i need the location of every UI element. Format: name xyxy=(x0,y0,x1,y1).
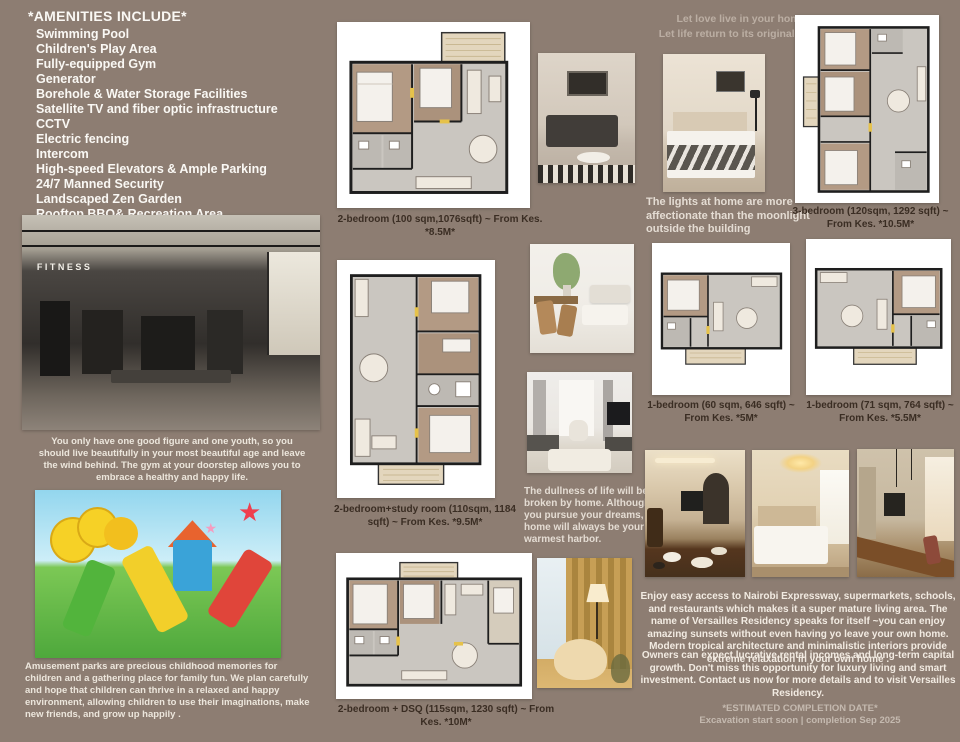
amenity-item: Generator xyxy=(28,72,334,87)
star-icon: ★ xyxy=(238,497,261,528)
floorplan-1bedroom-60-caption: 1-bedroom (60 sqm, 646 sqft) ~ From Kes.… xyxy=(645,400,797,425)
floorplan-1bedroom-71-drawing xyxy=(812,245,945,389)
floorplan-2bed-dsq-caption: 2-bedroom + DSQ (115sqm, 1230 sqft) ~ Fr… xyxy=(336,704,556,729)
floorplan-1bedroom-60-drawing xyxy=(658,249,785,389)
floorplan-1bedroom-71-caption: 1-bedroom (71 sqm, 764 sqft) ~ From Kes.… xyxy=(806,400,954,425)
bedroom-photo xyxy=(663,54,765,192)
dining-photo xyxy=(645,450,745,577)
amenities-list: *AMENITIES INCLUDE* Swimming Pool Childr… xyxy=(28,8,334,222)
floorplan-3bedroom-drawing xyxy=(801,23,933,196)
floorplan-2bed-study-caption: 2-bedroom+study room (110sqm, 1184 sqft)… xyxy=(330,504,520,529)
amenity-item: Swimming Pool xyxy=(28,27,334,42)
amenity-item: 24/7 Manned Security xyxy=(28,177,334,192)
amenity-item: Satellite TV and fiber optic infrastruct… xyxy=(28,102,334,117)
playground-photo: ★ ★ xyxy=(35,490,281,658)
floorplan-2bedroom-drawing xyxy=(345,29,523,200)
amenity-item: Fully-equipped Gym xyxy=(28,57,334,72)
amenity-item: Landscaped Zen Garden xyxy=(28,192,334,207)
dullness-quote: The dullness of life will be broken by h… xyxy=(524,486,654,546)
floorplan-2bed-study-drawing xyxy=(343,270,488,489)
floorplan-3bedroom xyxy=(795,15,939,203)
completion-date: *ESTIMATED COMPLETION DATE* Excavation s… xyxy=(688,703,912,727)
wood-living-photo xyxy=(857,449,954,577)
gym-photo: FITNESS xyxy=(22,215,320,430)
lamp-corner-photo xyxy=(537,558,632,688)
amenity-item: CCTV xyxy=(28,117,334,132)
fitness-sign: FITNESS xyxy=(37,262,93,272)
floorplan-2bedroom xyxy=(337,22,530,208)
warm-bedroom-photo xyxy=(752,450,849,577)
floorplan-1bedroom-71 xyxy=(806,239,951,395)
floorplan-2bed-dsq-drawing xyxy=(344,559,524,693)
star-icon: ★ xyxy=(204,520,217,537)
amenity-item: Electric fencing xyxy=(28,132,334,147)
playground-caption: Amusement parks are precious childhood m… xyxy=(25,661,313,721)
floorplan-2bed-dsq xyxy=(336,553,532,699)
marketing-paragraph-2: Owners can expect lucrative rental incom… xyxy=(638,650,958,700)
floorplan-2bed-study xyxy=(337,260,495,498)
tv-room-photo xyxy=(527,372,632,473)
amenities-title: *AMENITIES INCLUDE* xyxy=(28,8,334,24)
amenity-item: Borehole & Water Storage Facilities xyxy=(28,87,334,102)
living-room-photo xyxy=(538,53,635,183)
gym-caption: You only have one good figure and one yo… xyxy=(38,436,306,484)
amenity-item: High-speed Elevators & Ample Parking xyxy=(28,162,334,177)
amenity-item: Children's Play Area xyxy=(28,42,334,57)
floorplan-3bedroom-caption: 3-bedroom (120sqm, 1292 sqft) ~ From Kes… xyxy=(788,206,953,231)
completion-date-detail: Excavation start soon | completion Sep 2… xyxy=(688,715,912,727)
floorplan-1bedroom-60 xyxy=(652,243,790,395)
floorplan-2bedroom-caption: 2-bedroom (100 sqm,1076sqft) ~ From Kes.… xyxy=(328,214,552,239)
amenity-item: Intercom xyxy=(28,147,334,162)
flyer-canvas: *AMENITIES INCLUDE* Swimming Pool Childr… xyxy=(0,0,960,742)
completion-date-title: *ESTIMATED COMPLETION DATE* xyxy=(688,703,912,715)
white-living-photo xyxy=(530,244,634,353)
